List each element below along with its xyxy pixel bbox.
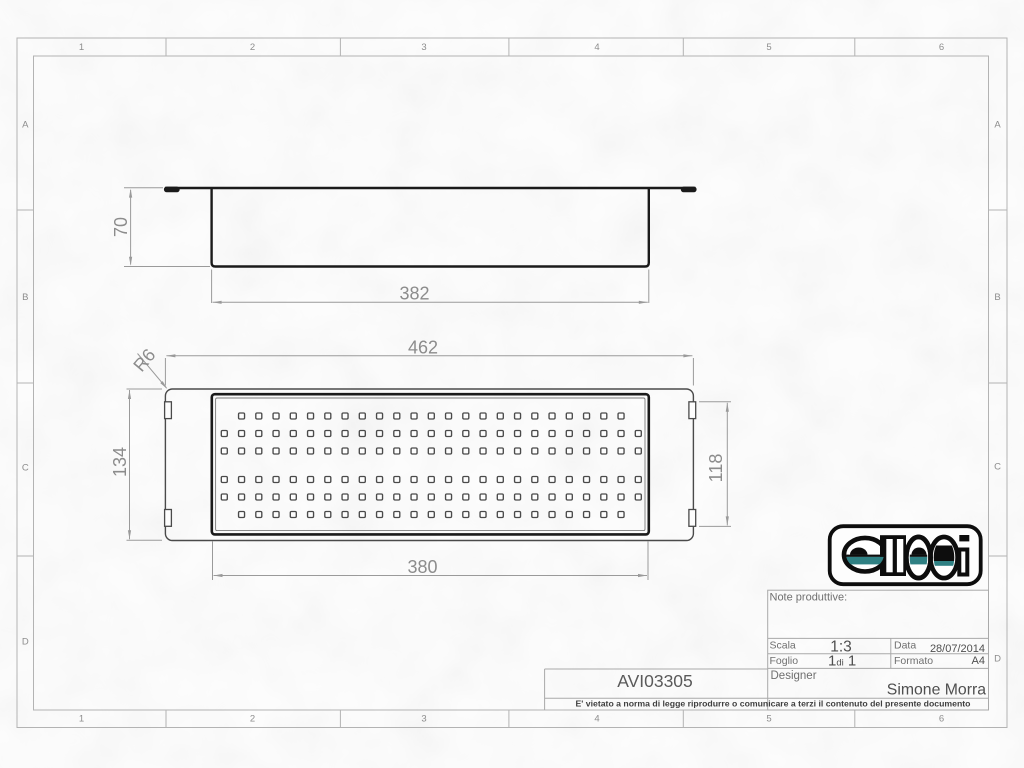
svg-text:C: C	[22, 463, 29, 474]
svg-text:A: A	[22, 120, 29, 131]
svg-text:Foglio: Foglio	[770, 655, 799, 667]
svg-text:C: C	[994, 462, 1001, 473]
svg-text:A4: A4	[972, 655, 985, 667]
svg-text:D: D	[994, 654, 1001, 665]
svg-text:2: 2	[250, 714, 255, 725]
svg-text:382: 382	[399, 284, 429, 304]
svg-text:6: 6	[939, 714, 944, 725]
svg-text:Data: Data	[894, 640, 916, 652]
svg-text:D: D	[22, 637, 29, 648]
svg-text:3: 3	[421, 714, 426, 725]
svg-text:5: 5	[766, 714, 771, 725]
svg-text:4: 4	[594, 42, 599, 53]
svg-text:Designer: Designer	[771, 670, 817, 682]
svg-text:Note produttive:: Note produttive:	[770, 592, 848, 604]
svg-text:380: 380	[407, 557, 437, 577]
svg-text:118: 118	[706, 454, 726, 483]
svg-text:1: 1	[79, 714, 84, 725]
svg-text:28/07/2014: 28/07/2014	[930, 643, 985, 655]
svg-text:AVI03305: AVI03305	[617, 671, 693, 691]
svg-text:462: 462	[408, 338, 438, 358]
svg-text:Formato: Formato	[894, 655, 933, 667]
svg-text:5: 5	[766, 42, 771, 53]
svg-text:70: 70	[111, 217, 131, 237]
svg-text:B: B	[994, 292, 1000, 303]
svg-text:E' vietato a norma di legge ri: E' vietato a norma di legge riprodurre o…	[575, 699, 970, 709]
svg-text:6: 6	[939, 42, 944, 53]
svg-text:3: 3	[421, 42, 426, 53]
svg-text:Simone Morra: Simone Morra	[887, 682, 986, 699]
svg-text:B: B	[22, 292, 28, 303]
svg-text:Scala: Scala	[770, 640, 796, 652]
svg-text:A: A	[994, 120, 1001, 131]
svg-text:2: 2	[250, 42, 255, 53]
svg-text:1: 1	[79, 42, 84, 53]
svg-text:134: 134	[110, 447, 130, 477]
svg-text:4: 4	[594, 714, 599, 725]
